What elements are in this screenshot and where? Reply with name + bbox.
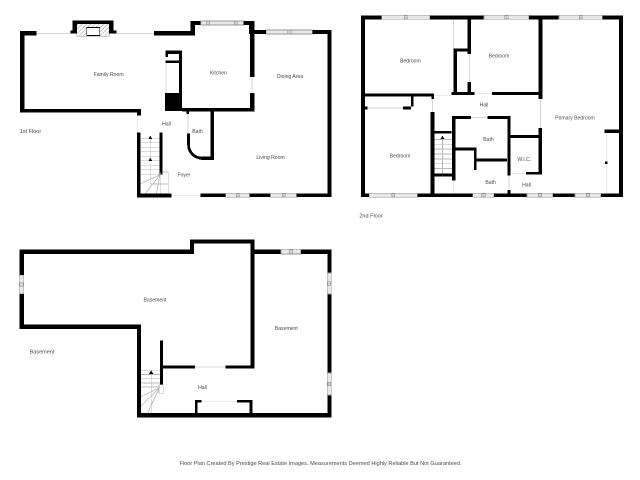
- svg-text:Bedroom: Bedroom: [400, 59, 421, 65]
- svg-text:2nd Floor: 2nd Floor: [359, 214, 382, 220]
- svg-text:Dining Area: Dining Area: [277, 74, 304, 80]
- svg-text:Foyer: Foyer: [177, 173, 190, 179]
- svg-text:Bedroom: Bedroom: [390, 154, 411, 160]
- svg-text:Basement: Basement: [144, 298, 168, 304]
- svg-text:Bath: Bath: [485, 180, 496, 186]
- svg-text:Bedroom: Bedroom: [489, 54, 510, 60]
- svg-text:Hall: Hall: [522, 183, 531, 189]
- svg-text:Hall: Hall: [198, 385, 207, 391]
- svg-text:Family Room: Family Room: [94, 72, 124, 78]
- svg-text:W.I.C.: W.I.C.: [517, 157, 531, 163]
- svg-text:Floor Plan Created By Prestige: Floor Plan Created By Prestige Real Esta…: [179, 461, 461, 467]
- svg-text:Hall: Hall: [162, 122, 171, 128]
- svg-text:Hall: Hall: [480, 103, 489, 109]
- svg-text:Basement: Basement: [30, 350, 55, 356]
- svg-text:Basement: Basement: [275, 326, 299, 332]
- svg-text:Primary Bedroom: Primary Bedroom: [555, 116, 595, 122]
- svg-text:Bath: Bath: [483, 137, 494, 143]
- svg-text:Kitchen: Kitchen: [210, 70, 227, 76]
- svg-text:1st Floor: 1st Floor: [20, 129, 42, 135]
- svg-text:Living Room: Living Room: [256, 155, 284, 161]
- svg-text:Bath: Bath: [192, 129, 203, 135]
